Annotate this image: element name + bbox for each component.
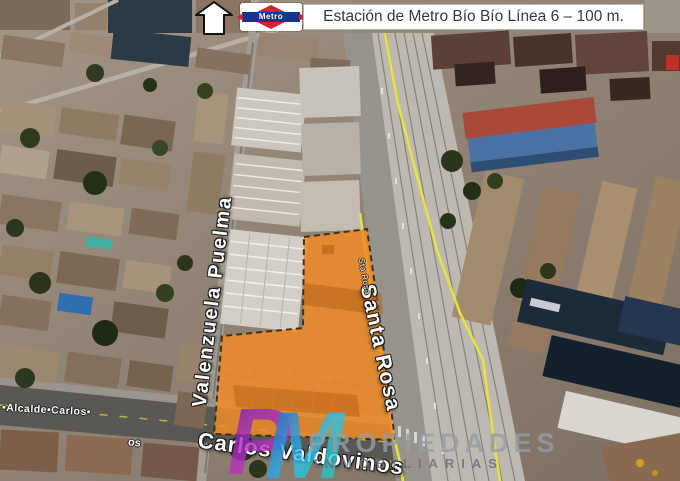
metro-logo-text: Metro	[240, 12, 302, 22]
watermark-inmobiliarias: INMOBILIARIAS	[314, 456, 504, 471]
metro-logo: Metro	[240, 3, 302, 31]
station-distance-caption: Estación de Metro Bío Bío Línea 6 – 100 …	[303, 4, 644, 30]
watermark-propiedades: PROPIEDADES	[308, 428, 560, 459]
street-label-fragment: os	[127, 436, 141, 449]
north-arrow-icon	[193, 0, 237, 36]
listing-map-image: Valenzuela Puelma Santa Rosa Sta Rosa Ca…	[0, 0, 680, 481]
